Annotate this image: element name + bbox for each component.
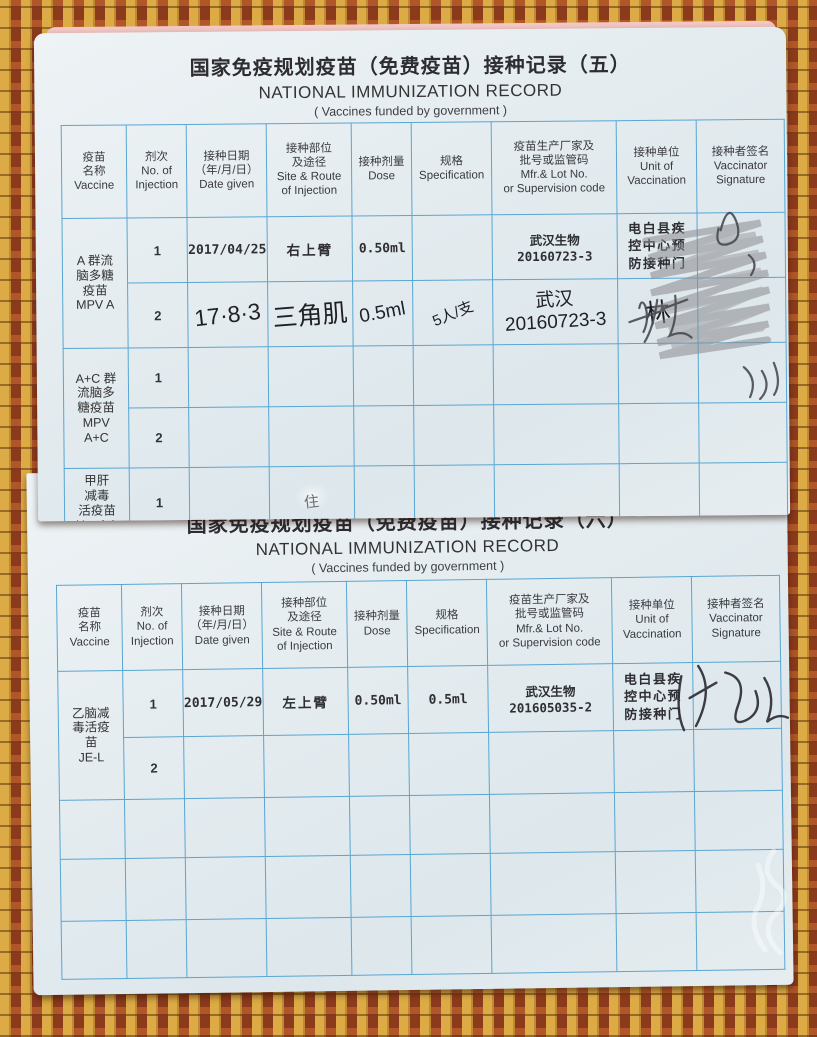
cell-empty bbox=[265, 855, 351, 918]
handwritten-specification: 5人/支 bbox=[429, 295, 476, 331]
record-page-6: 国家免疫规划疫苗（免费疫苗）接种记录（六） NATIONAL IMMUNIZAT… bbox=[26, 463, 793, 996]
empty-row bbox=[60, 849, 784, 921]
cell-empty bbox=[615, 851, 696, 914]
cell-empty bbox=[614, 730, 695, 793]
cell-empty bbox=[353, 345, 414, 406]
cell-unit: 林 bbox=[618, 278, 699, 344]
header-date-given: 接种日期 （年/月/日） Date given bbox=[181, 583, 262, 670]
cell-empty bbox=[489, 793, 615, 854]
cell-mfr-lot: 武汉生物 201605035-2 bbox=[488, 664, 614, 733]
immunization-table-5: 疫苗 名称 Vaccine 剂次 No. of Injection 接种日期 （… bbox=[61, 119, 789, 522]
header-vaccinator-signature: 接种者签名 Vaccinator Signature bbox=[696, 119, 785, 213]
header-mfr-lot: 疫苗生产厂家及 批号或监管码 Mfr.& Lot No. or Supervis… bbox=[486, 578, 612, 666]
cell-site-route: 左上臂 bbox=[263, 667, 349, 735]
cell-empty bbox=[619, 403, 700, 464]
cell-site-route: 三角肌 bbox=[268, 281, 354, 347]
cell-empty bbox=[349, 734, 410, 797]
cell-empty bbox=[493, 344, 619, 405]
cell-injection-no: 2 bbox=[124, 737, 185, 800]
cell-empty bbox=[414, 465, 495, 521]
header-dose: 接种剂量 Dose bbox=[351, 123, 412, 217]
cell-empty bbox=[189, 467, 270, 522]
handwritten-mfr-lot: 武汉 20160723-3 bbox=[503, 287, 607, 337]
cell-signature bbox=[693, 661, 782, 729]
vaccine-name-mpva: A 群流 脑多糖 疫苗 MPV A bbox=[62, 218, 128, 349]
cell-empty bbox=[490, 852, 616, 916]
cell-empty bbox=[188, 347, 269, 408]
cell-empty bbox=[60, 858, 126, 921]
cell-empty bbox=[409, 732, 490, 795]
cell-specification bbox=[412, 215, 493, 281]
cell-empty bbox=[354, 405, 415, 466]
cell-empty bbox=[126, 920, 187, 979]
handwritten-dose: 0.5ml bbox=[358, 298, 408, 328]
cell-empty bbox=[409, 794, 490, 854]
vaccine-name-hepa: 甲肝 减毒 活疫苗 HepA-L bbox=[64, 468, 130, 521]
cell-signature bbox=[698, 277, 787, 343]
header-unit: 接种单位 Unit of Vaccination bbox=[616, 120, 697, 214]
cell-dose: 0.50ml bbox=[348, 667, 409, 735]
cell-empty bbox=[696, 911, 785, 970]
cell-empty bbox=[264, 796, 350, 856]
mpva-row-1: A 群流 脑多糖 疫苗 MPV A 1 2017/04/25 右上臂 0.50m… bbox=[62, 212, 786, 283]
cell-empty bbox=[699, 402, 788, 463]
header-site-route: 接种部位 及途径 Site & Route of Injection bbox=[266, 123, 352, 217]
cell-empty bbox=[699, 462, 788, 521]
empty-row bbox=[59, 790, 783, 859]
cell-empty bbox=[619, 463, 700, 521]
mpva-row-2-handwritten: 2 17·8·3 三角肌 0.5ml 5人/支 武汉 20160723-3 林 bbox=[63, 277, 787, 348]
cell-dose: 0.50ml bbox=[352, 215, 413, 281]
cell-empty bbox=[618, 343, 699, 404]
cell-empty bbox=[124, 799, 185, 859]
cell-mfr-lot: 武汉生物 20160723-3 bbox=[492, 214, 618, 280]
cell-empty bbox=[491, 914, 617, 974]
unit-stamp: 电白县疾 控中心预 防接种门 bbox=[617, 213, 698, 279]
header-vaccine: 疫苗 名称 Vaccine bbox=[56, 585, 122, 672]
vaccine-name-jel: 乙脑减 毒活疫 苗 JE-L bbox=[58, 671, 125, 801]
cell-empty bbox=[413, 345, 494, 406]
cell-empty bbox=[695, 849, 784, 912]
cell-site-route: 右上臂 bbox=[267, 216, 353, 282]
handwritten-smudge: 住 bbox=[303, 490, 320, 513]
cell-signature bbox=[697, 212, 786, 278]
cell-mfr-lot: 武汉 20160723-3 bbox=[493, 279, 619, 345]
handwritten-signature: 林 bbox=[643, 291, 673, 331]
header-unit: 接种单位 Unit of Vaccination bbox=[611, 577, 692, 664]
cell-empty bbox=[269, 406, 355, 467]
cell-date-given: 2017/04/25 bbox=[187, 217, 268, 283]
cell-empty bbox=[411, 915, 492, 974]
cell-injection-no: 1 bbox=[128, 347, 189, 408]
cell-empty bbox=[184, 798, 265, 858]
cell-empty bbox=[185, 857, 266, 920]
cell-empty bbox=[266, 917, 352, 976]
cell-empty bbox=[351, 917, 412, 976]
mpvac-row-1: A+C 群 流脑多 糖疫苗 MPV A+C 1 bbox=[63, 342, 786, 408]
cell-empty bbox=[354, 465, 415, 521]
cell-injection-no: 2 bbox=[128, 282, 189, 348]
cell-empty bbox=[694, 790, 783, 850]
cell-injection-no: 1 bbox=[127, 217, 188, 283]
table5-header-row: 疫苗 名称 Vaccine 剂次 No. of Injection 接种日期 （… bbox=[61, 119, 785, 218]
cell-date-given: 17·8·3 bbox=[188, 282, 269, 348]
cell-empty bbox=[694, 728, 783, 791]
header-vaccine: 疫苗 名称 Vaccine bbox=[61, 125, 127, 219]
jel-row-2: 2 bbox=[59, 728, 783, 800]
record-page-5: 国家免疫规划疫苗（免费疫苗）接种记录（五） NATIONAL IMMUNIZAT… bbox=[34, 27, 790, 522]
cell-specification: 5人/支 bbox=[413, 280, 494, 346]
unit-stamp: 电白县疾 控中心预 防接种门 bbox=[613, 663, 694, 731]
cell-empty bbox=[189, 407, 270, 468]
header-mfr-lot: 疫苗生产厂家及 批号或监管码 Mfr.& Lot No. or Supervis… bbox=[491, 121, 617, 215]
immunization-table-6: 疫苗 名称 Vaccine 剂次 No. of Injection 接种日期 （… bbox=[56, 575, 785, 980]
mpvac-row-2: 2 bbox=[64, 402, 787, 468]
header-injection-no: 剂次 No. of Injection bbox=[126, 124, 187, 218]
cell-empty bbox=[410, 853, 491, 916]
cell-injection-no: 2 bbox=[129, 407, 190, 468]
table6-header-row: 疫苗 名称 Vaccine 剂次 No. of Injection 接种日期 （… bbox=[56, 575, 780, 671]
cell-injection-no: 1 bbox=[129, 467, 190, 521]
cell-empty bbox=[268, 346, 354, 407]
cell-empty bbox=[414, 405, 495, 466]
cell-empty bbox=[350, 855, 411, 918]
cell-site-route: 住 bbox=[269, 466, 355, 521]
cell-dose: 0.5ml bbox=[353, 280, 414, 346]
header-specification: 规格 Specification bbox=[411, 122, 492, 216]
cell-empty bbox=[61, 920, 127, 979]
cell-empty bbox=[494, 464, 620, 522]
page5-title-chinese: 国家免疫规划疫苗（免费疫苗）接种记录（五） bbox=[34, 47, 786, 83]
cell-empty bbox=[125, 858, 186, 921]
cell-empty bbox=[489, 731, 615, 795]
cell-empty bbox=[184, 736, 265, 799]
cell-empty bbox=[59, 799, 125, 859]
empty-row bbox=[61, 911, 785, 979]
cell-empty bbox=[614, 792, 695, 852]
header-specification: 规格 Specification bbox=[406, 579, 487, 666]
cell-date-given: 2017/05/29 bbox=[183, 669, 264, 737]
cell-empty bbox=[698, 342, 787, 403]
hepa-row-1: 甲肝 减毒 活疫苗 HepA-L 1 住 bbox=[64, 462, 788, 521]
header-dose: 接种剂量 Dose bbox=[346, 581, 407, 668]
handwritten-site: 三角肌 bbox=[272, 293, 350, 335]
header-vaccinator-signature: 接种者签名 Vaccinator Signature bbox=[691, 575, 780, 662]
vaccine-name-mpvac: A+C 群 流脑多 糖疫苗 MPV A+C bbox=[63, 348, 129, 469]
photo-scene: 国家免疫规划疫苗（免费疫苗）接种记录（六） NATIONAL IMMUNIZAT… bbox=[0, 0, 817, 1037]
header-date-given: 接种日期 （年/月/日） Date given bbox=[186, 124, 267, 218]
cell-empty bbox=[264, 734, 350, 797]
cell-injection-no: 1 bbox=[123, 670, 184, 738]
cell-empty bbox=[349, 796, 410, 856]
header-site-route: 接种部位 及途径 Site & Route of Injection bbox=[261, 581, 347, 668]
handwritten-date: 17·8·3 bbox=[193, 297, 262, 331]
cell-specification: 0.5ml bbox=[408, 665, 489, 733]
cell-empty bbox=[186, 919, 267, 978]
cell-empty bbox=[616, 913, 697, 972]
cell-empty bbox=[494, 404, 620, 465]
jel-row-1: 乙脑减 毒活疫 苗 JE-L 1 2017/05/29 左上臂 0.50ml 0… bbox=[58, 661, 782, 738]
header-injection-no: 剂次 No. of Injection bbox=[121, 584, 182, 671]
